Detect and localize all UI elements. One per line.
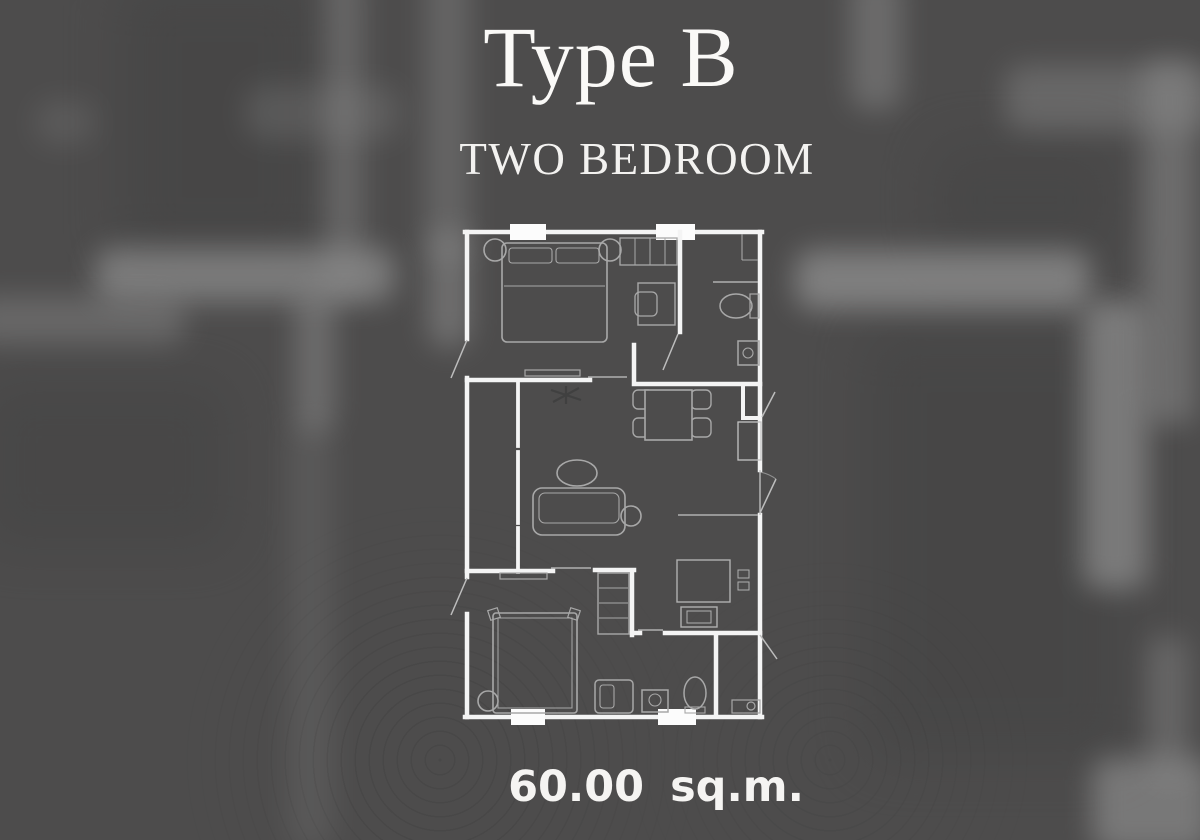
hallway: [595, 573, 633, 713]
closet: [620, 238, 677, 265]
area-value: 60.00: [508, 762, 644, 812]
door-swing: [451, 578, 467, 615]
door-swing: [663, 334, 678, 370]
double-bed: [502, 243, 607, 342]
dresser: [500, 573, 547, 579]
door-swing: [760, 479, 776, 513]
interior-walls: [467, 232, 760, 715]
bathroom-1: [720, 234, 759, 365]
pillow: [509, 248, 552, 263]
toilet: [684, 677, 706, 709]
brochure-page: Type B TWO BEDROOM: [0, 0, 1200, 840]
sofa: [533, 488, 625, 535]
stove-detail: [738, 582, 749, 590]
dining-chair: [691, 390, 711, 409]
bed-inner: [498, 618, 572, 708]
living-area: [533, 386, 641, 535]
sink-unit: [681, 607, 717, 627]
coffee-table: [557, 460, 597, 486]
door-swing: [451, 340, 467, 378]
blurred-wall-band: [0, 296, 185, 344]
bedroom-2: [478, 573, 580, 713]
dining-table: [645, 390, 692, 440]
bedroom-1: [484, 238, 677, 376]
floor-plan-container: [439, 220, 789, 730]
window: [510, 224, 546, 240]
closet-dividers: [635, 238, 665, 265]
windows: [510, 224, 696, 725]
stove-detail: [738, 570, 749, 578]
door-swing: [762, 392, 775, 417]
sink-vanity: [738, 341, 759, 365]
sink-basin: [687, 611, 711, 623]
washbasin-bowl: [649, 694, 661, 706]
window: [511, 709, 545, 725]
page-subtitle: TWO BEDROOM: [0, 133, 1200, 185]
blurred-wall-band: [795, 250, 1090, 310]
shoe-cabinet: [738, 422, 761, 460]
single-bed: [493, 613, 577, 713]
blurred-wall-band: [95, 248, 395, 302]
toilet: [720, 294, 752, 318]
washer-door: [600, 685, 614, 708]
door-swing: [760, 635, 777, 659]
wall-entry-alcove: [743, 384, 760, 418]
blurred-dark-room: [0, 380, 230, 550]
blurred-wall-band: [1082, 300, 1148, 590]
bathroom-2: [642, 677, 760, 713]
shower-screen: [742, 234, 758, 260]
blurred-wall-band: [295, 288, 335, 433]
sink-bowl: [743, 348, 753, 358]
floor-plan: [439, 220, 789, 730]
page-title: Type B: [0, 12, 1200, 102]
unit-area: 60.00sq.m.: [0, 762, 1200, 812]
ceiling-fan-icon: [551, 386, 581, 404]
kitchen: [677, 515, 758, 627]
fan-hub: [564, 393, 568, 397]
sofa-cushions: [539, 493, 619, 523]
water-heater-shelf: [732, 700, 760, 713]
dining-area: [633, 390, 711, 440]
blurred-wall-band: [1142, 60, 1197, 425]
side-table: [621, 506, 641, 526]
stool: [478, 691, 498, 711]
dining-chair: [691, 418, 711, 437]
area-unit: sq.m.: [670, 762, 804, 812]
washbasin: [642, 690, 668, 712]
door-arc: [760, 472, 776, 479]
pillow: [556, 248, 599, 263]
wardrobe-shelves: [599, 588, 628, 618]
tv-cabinet: [525, 370, 580, 376]
kitchen-counter: [677, 560, 730, 602]
water-heater: [747, 702, 755, 710]
